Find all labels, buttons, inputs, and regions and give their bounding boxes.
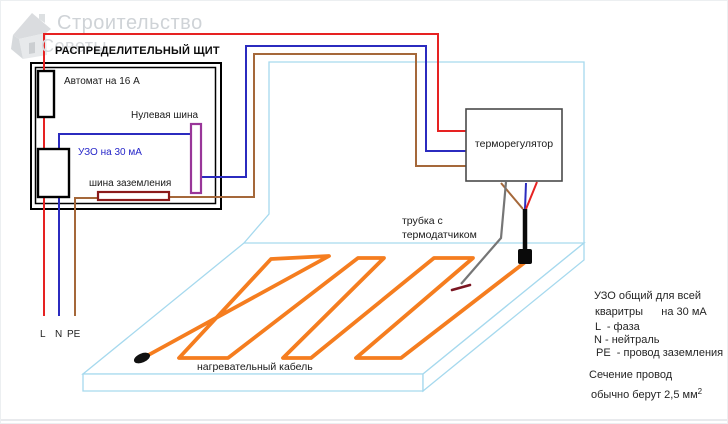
breaker-box	[38, 71, 54, 117]
cable-connector	[518, 249, 532, 264]
floor-front-face	[83, 374, 423, 391]
floor-slab	[83, 243, 584, 391]
neutral-bus-label: Нулевая шина	[131, 110, 198, 122]
legend-neutral: N - нейтраль	[594, 334, 659, 347]
sensor-label-line1: трубка с	[402, 215, 443, 227]
wiring-diagram-canvas: Строительство Советы РАСПРЕДЕЛИТЕЛЬНЫЙ Щ…	[0, 0, 728, 424]
note-section-text: обычно берут 2,5 мм	[591, 389, 698, 401]
legend-phase: L - фаза	[595, 321, 640, 334]
note-section-line2: обычно берут 2,5 мм2	[591, 385, 702, 402]
thermostat-lead-neutral	[525, 183, 526, 209]
neutral-bus-bar	[191, 124, 201, 193]
diagram-scene	[1, 1, 728, 424]
ground-bus-label: шина заземления	[89, 178, 171, 190]
legend-ground: PE - провод заземления	[596, 347, 723, 360]
terminal-n-label: N	[55, 329, 62, 341]
note-section-line1: Сечение провод	[589, 369, 672, 382]
watermark-line1: Строительство	[57, 12, 203, 35]
note-rcd-line2: кваритры на 30 мА	[595, 306, 707, 319]
terminal-pe-label: PE	[67, 329, 80, 341]
thermostat-label: терморегулятор	[466, 138, 562, 150]
note-section-superscript: 2	[698, 387, 702, 396]
rcd-box	[38, 149, 69, 197]
breaker-label: Автомат на 16 А	[64, 76, 140, 88]
sensor-label-line2: термодатчиком	[402, 229, 477, 241]
note-rcd-line1: УЗО общий для всей	[594, 290, 701, 303]
heating-cable-label: нагревательный кабель	[197, 361, 313, 373]
thermostat-lead-phase	[526, 182, 537, 209]
panel-title: РАСПРЕДЕЛИТЕЛЬНЫЙ ЩИТ	[55, 45, 220, 57]
ground-bus-bar	[98, 192, 169, 200]
rcd-label: УЗО на 30 мА	[78, 147, 142, 159]
terminal-l-label: L	[40, 329, 46, 341]
